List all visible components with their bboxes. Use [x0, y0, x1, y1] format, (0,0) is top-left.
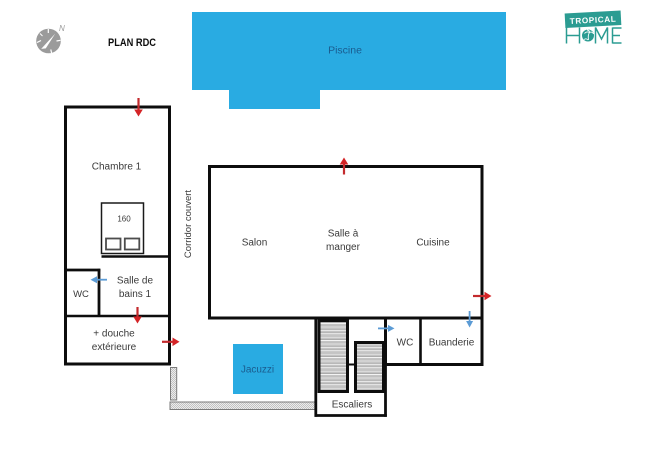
svg-text:Salon: Salon [242, 238, 268, 249]
svg-text:Salle à: Salle à [328, 229, 359, 240]
svg-text:Chambre 1: Chambre 1 [92, 162, 142, 173]
svg-text:160: 160 [117, 215, 131, 224]
svg-text:PLAN RDC: PLAN RDC [108, 37, 156, 49]
svg-text:extérieure: extérieure [92, 342, 137, 353]
svg-text:bains 1: bains 1 [119, 289, 152, 300]
svg-text:Piscine: Piscine [328, 45, 362, 57]
svg-text:WC: WC [73, 289, 89, 300]
svg-text:Jacuzzi: Jacuzzi [241, 365, 274, 376]
svg-text:+ douche: + douche [93, 329, 135, 340]
svg-text:Buanderie: Buanderie [429, 338, 475, 349]
svg-text:N: N [59, 24, 65, 33]
svg-text:Salle de: Salle de [117, 276, 154, 287]
svg-text:Corridor couvert: Corridor couvert [183, 190, 194, 258]
svg-text:Escaliers: Escaliers [332, 400, 373, 411]
svg-text:WC: WC [397, 338, 414, 349]
svg-text:Cuisine: Cuisine [416, 238, 450, 249]
svg-text:manger: manger [326, 242, 361, 253]
